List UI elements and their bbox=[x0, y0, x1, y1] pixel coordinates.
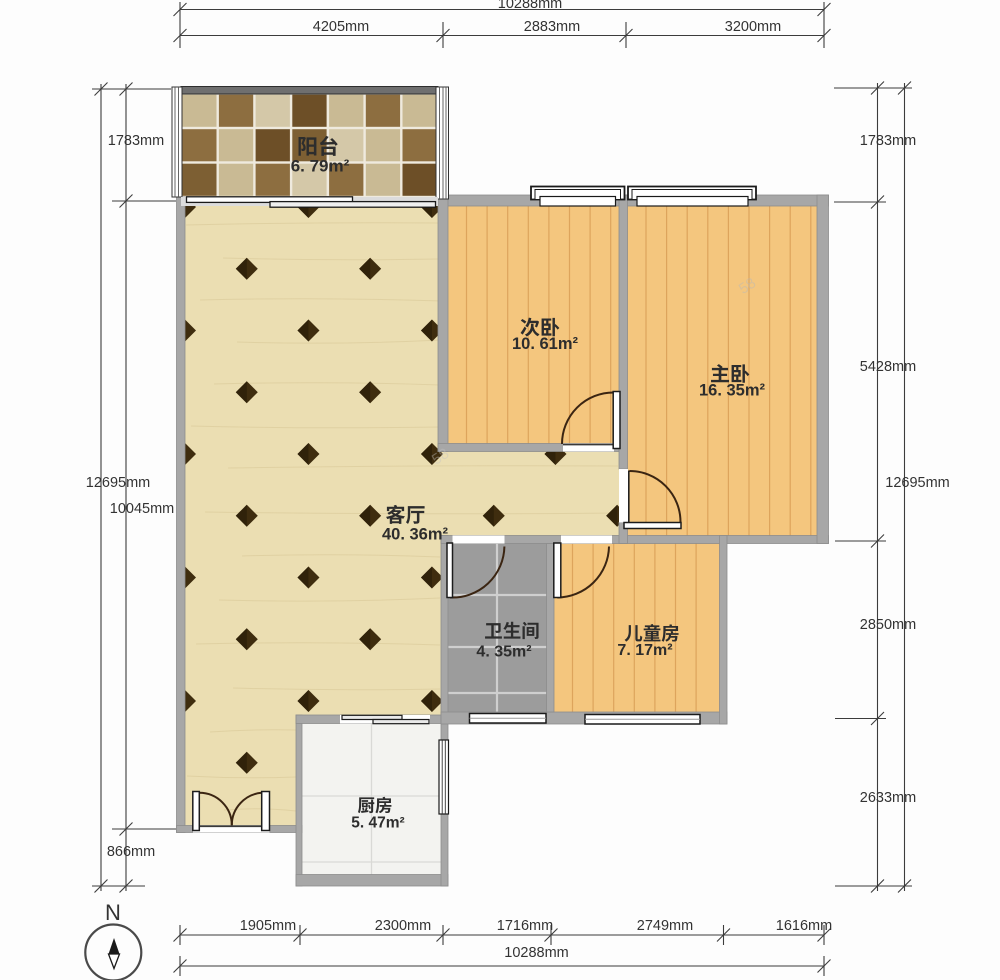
svg-text:10288mm: 10288mm bbox=[498, 0, 562, 12]
svg-text:1783mm: 1783mm bbox=[108, 133, 164, 149]
svg-text:12695mm: 12695mm bbox=[86, 475, 150, 491]
svg-text:6. 79m²: 6. 79m² bbox=[291, 157, 350, 176]
svg-text:5428mm: 5428mm bbox=[860, 359, 916, 375]
svg-text:1905mm: 1905mm bbox=[240, 918, 296, 934]
svg-text:2850mm: 2850mm bbox=[860, 617, 916, 633]
svg-text:10. 61m²: 10. 61m² bbox=[512, 335, 579, 353]
svg-text:4. 35m²: 4. 35m² bbox=[476, 644, 531, 661]
svg-text:4205mm: 4205mm bbox=[313, 19, 369, 35]
svg-text:2300mm: 2300mm bbox=[375, 918, 431, 934]
svg-text:40. 36m²: 40. 36m² bbox=[382, 526, 449, 544]
svg-text:10045mm: 10045mm bbox=[110, 501, 174, 517]
svg-text:16. 35m²: 16. 35m² bbox=[699, 382, 766, 400]
svg-text:5. 47m²: 5. 47m² bbox=[351, 815, 404, 832]
svg-text:1783mm: 1783mm bbox=[860, 133, 916, 149]
svg-text:10288mm: 10288mm bbox=[504, 945, 568, 961]
svg-text:2883mm: 2883mm bbox=[524, 19, 580, 35]
svg-text:7. 17m²: 7. 17m² bbox=[617, 642, 672, 659]
svg-text:2633mm: 2633mm bbox=[860, 790, 916, 806]
svg-text:1716mm: 1716mm bbox=[497, 918, 553, 934]
svg-text:3200mm: 3200mm bbox=[725, 19, 781, 35]
svg-text:866mm: 866mm bbox=[107, 844, 155, 860]
svg-text:N: N bbox=[105, 900, 121, 925]
svg-text:1616mm: 1616mm bbox=[776, 918, 832, 934]
svg-text:2749mm: 2749mm bbox=[637, 918, 693, 934]
svg-text:12695mm: 12695mm bbox=[885, 475, 949, 491]
